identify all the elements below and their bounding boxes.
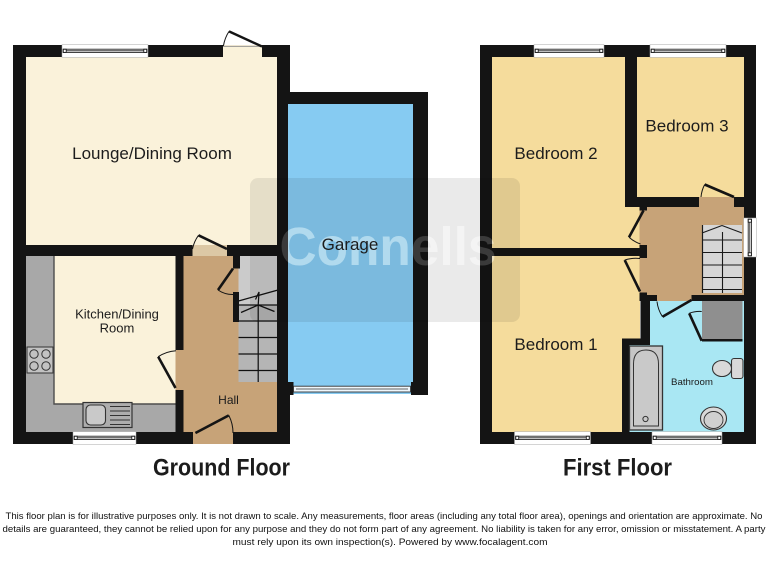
svg-text:First Floor: First Floor [563,454,672,481]
svg-text:Ground Floor: Ground Floor [153,454,290,481]
svg-text:Hall: Hall [218,393,239,407]
svg-text:must rely upon its own inspect: must rely upon its own inspection(s). Po… [233,537,548,548]
svg-text:Bedroom 3: Bedroom 3 [645,117,728,136]
svg-text:Garage: Garage [322,235,379,254]
svg-text:This floor plan is for illustr: This floor plan is for illustrative purp… [6,511,763,522]
svg-text:Bedroom 1: Bedroom 1 [514,335,597,354]
svg-text:Room: Room [100,321,135,336]
svg-text:Bathroom: Bathroom [671,377,713,388]
svg-text:Bedroom 2: Bedroom 2 [514,144,597,163]
svg-text:details are guaranteed, they c: details are guaranteed, they cannot be r… [3,524,766,535]
svg-text:Connells: Connells [280,217,497,277]
svg-text:Kitchen/Dining: Kitchen/Dining [75,307,159,322]
svg-text:Lounge/Dining Room: Lounge/Dining Room [72,144,232,163]
